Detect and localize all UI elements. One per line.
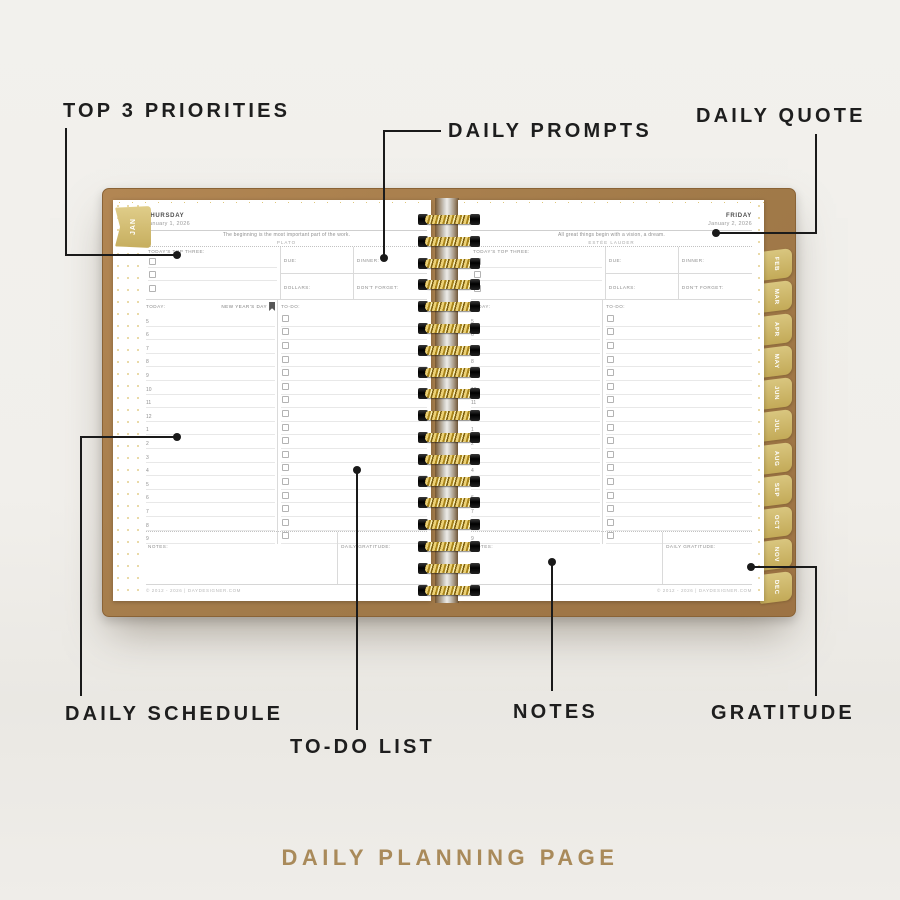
schedule-row: 9 — [471, 367, 600, 381]
todo-row — [281, 435, 427, 449]
today-column: TODAY: NEW YEAR'S DAY 567891011121234567… — [146, 300, 278, 544]
annotation-notes: NOTES — [513, 701, 598, 724]
planner-right-page: FRIDAY January 2, 2026 All great things … — [458, 200, 764, 601]
priority-row — [473, 254, 602, 268]
checkbox-icon — [607, 383, 614, 390]
callout-line — [383, 130, 385, 258]
todo-row — [606, 327, 752, 341]
product-annotation-scene: THURSDAY January 1, 2026 The beginning i… — [0, 0, 900, 900]
callout-line — [80, 436, 176, 438]
holiday-label: NEW YEAR'S DAY — [221, 304, 267, 309]
daily-prompts-section: TODAY'S TOP THREE: DUE: DOLLARS: DINNER:… — [471, 246, 752, 300]
annotation-daily-prompts: DAILY PROMPTS — [448, 120, 652, 143]
gold-speckle-edge — [754, 200, 764, 601]
schedule-row: 3 — [146, 449, 275, 463]
schedule-row: 1 — [471, 422, 600, 436]
caption-daily-planning-page: DAILY PLANNING PAGE — [0, 845, 900, 871]
binding-coil — [418, 258, 480, 269]
callout-line — [815, 134, 817, 234]
schedule-row: 8 — [146, 354, 275, 368]
checkbox-icon — [282, 519, 289, 526]
binding-coil — [418, 432, 480, 443]
month-tab: SEP — [760, 474, 792, 507]
todo-row — [281, 381, 427, 395]
binding-coil — [418, 497, 480, 508]
month-tabs: FEBMARAPRMAYJUNJULAUGSEPOCTNOVDEC — [760, 250, 792, 602]
dont-forget-box: DON'T FORGET: — [354, 274, 427, 300]
todo-row — [606, 313, 752, 327]
checkbox-icon — [282, 383, 289, 390]
checkbox-icon — [607, 369, 614, 376]
checkbox-icon — [607, 437, 614, 444]
todo-row — [606, 422, 752, 436]
binding-coil — [418, 388, 480, 399]
binding-coil — [418, 476, 480, 487]
callout-line — [815, 566, 817, 696]
todo-row — [606, 490, 752, 504]
binding-coil — [418, 410, 480, 421]
month-tab: OCT — [760, 506, 792, 539]
schedule-row: 12 — [471, 408, 600, 422]
todo-row — [281, 408, 427, 422]
schedule-row: 11 — [146, 395, 275, 409]
checkbox-icon — [607, 410, 614, 417]
schedule-row: 8 — [146, 517, 275, 531]
callout-line — [356, 471, 358, 730]
month-tab: FEB — [760, 248, 792, 281]
notes-gratitude-section: NOTES: DAILY GRATITUDE: — [471, 531, 752, 585]
schedule-row: 1 — [146, 422, 275, 436]
quote-author: ESTÉE LAUDER — [471, 240, 752, 245]
checkbox-icon — [149, 271, 156, 278]
callout-line — [383, 130, 441, 132]
annotation-top-3-priorities: TOP 3 PRIORITIES — [63, 100, 290, 123]
todo-row — [606, 381, 752, 395]
todo-row — [281, 490, 427, 504]
notes-box: NOTES: — [146, 532, 337, 584]
daily-schedule-section: TODAY: 56789101112123456789 TO-DO: — [471, 300, 752, 528]
callout-dot — [548, 558, 556, 566]
checkbox-icon — [282, 492, 289, 499]
schedule-row: 7 — [146, 503, 275, 517]
checkbox-icon — [282, 437, 289, 444]
callout-dot — [353, 466, 361, 474]
todo-row — [281, 422, 427, 436]
todo-row — [281, 327, 427, 341]
todo-row — [606, 354, 752, 368]
schedule-row: 6 — [471, 327, 600, 341]
today-label: TODAY: — [146, 304, 165, 309]
gratitude-box: DAILY GRATITUDE: — [337, 532, 427, 584]
annotation-gratitude: GRATITUDE — [711, 702, 855, 725]
dinner-box: DINNER: — [679, 247, 752, 274]
todo-row — [606, 367, 752, 381]
gratitude-box: DAILY GRATITUDE: — [662, 532, 752, 584]
top-three-box: TODAY'S TOP THREE: — [471, 247, 606, 299]
checkbox-icon — [282, 396, 289, 403]
checkbox-icon — [282, 315, 289, 322]
dinner-box: DINNER: — [354, 247, 427, 274]
checkbox-icon — [282, 464, 289, 471]
todo-row — [606, 463, 752, 477]
month-tab: AUG — [760, 442, 792, 475]
todo-label: TO-DO: — [606, 304, 625, 309]
schedule-row: 8 — [471, 517, 600, 531]
priority-row — [473, 268, 602, 282]
notes-box: NOTES: — [471, 532, 662, 584]
dont-forget-box: DON'T FORGET: — [679, 274, 752, 300]
todo-row — [281, 476, 427, 490]
today-column: TODAY: 56789101112123456789 — [471, 300, 603, 544]
checkbox-icon — [149, 285, 156, 292]
spiral-binding — [418, 214, 480, 604]
todo-row — [606, 435, 752, 449]
month-tab: MAY — [760, 345, 792, 378]
callout-line — [719, 232, 817, 234]
checkbox-icon — [607, 356, 614, 363]
schedule-row: 9 — [146, 367, 275, 381]
binding-coil — [418, 323, 480, 334]
callout-dot — [747, 563, 755, 571]
todo-row — [606, 517, 752, 531]
callout-dot — [380, 254, 388, 262]
notes-gratitude-section: NOTES: DAILY GRATITUDE: — [146, 531, 427, 585]
schedule-row: 5 — [146, 476, 275, 490]
checkbox-icon — [607, 342, 614, 349]
binding-coil — [418, 367, 480, 378]
checkbox-icon — [149, 258, 156, 265]
schedule-row: 2 — [471, 435, 600, 449]
priority-row — [148, 281, 277, 294]
page-footer: © 2012 - 2026 | DAYDESIGNER.COM — [146, 588, 427, 593]
tab-jan: JAN — [115, 206, 151, 248]
schedule-row: 6 — [146, 490, 275, 504]
todo-row — [281, 340, 427, 354]
todo-row — [606, 449, 752, 463]
todo-row — [606, 476, 752, 490]
binding-coil — [418, 541, 480, 552]
schedule-row: 10 — [471, 381, 600, 395]
page-header: FRIDAY January 2, 2026 — [471, 213, 752, 231]
dollars-box: DOLLARS: — [281, 274, 353, 300]
month-tab: MAR — [760, 280, 792, 313]
todo-row — [606, 503, 752, 517]
date-label: January 2, 2026 — [471, 221, 752, 227]
checkbox-icon — [282, 478, 289, 485]
todo-row — [281, 449, 427, 463]
schedule-row: 10 — [146, 381, 275, 395]
callout-line — [551, 564, 553, 691]
checkbox-icon — [282, 505, 289, 512]
binding-coil — [418, 519, 480, 530]
checkbox-icon — [607, 519, 614, 526]
page-footer: © 2012 - 2026 | DAYDESIGNER.COM — [471, 588, 752, 593]
binding-coil — [418, 236, 480, 247]
month-tab: JUN — [760, 377, 792, 410]
binding-coil — [418, 279, 480, 290]
due-box: DUE: — [606, 247, 678, 274]
binding-coil — [418, 345, 480, 356]
callout-line — [752, 566, 817, 568]
checkbox-icon — [607, 328, 614, 335]
checkbox-icon — [282, 410, 289, 417]
todo-row — [281, 367, 427, 381]
schedule-row: 7 — [146, 340, 275, 354]
callout-dot — [712, 229, 720, 237]
checkbox-icon — [607, 424, 614, 431]
checkbox-icon — [282, 328, 289, 335]
callout-dot — [173, 433, 181, 441]
checkbox-icon — [282, 451, 289, 458]
month-tab: DEC — [760, 571, 792, 604]
checkbox-icon — [607, 478, 614, 485]
checkbox-icon — [607, 464, 614, 471]
binding-coil — [418, 563, 480, 574]
annotation-daily-schedule: DAILY SCHEDULE — [65, 703, 283, 726]
gold-speckle-edge — [113, 200, 141, 601]
schedule-row: 5 — [471, 313, 600, 327]
todo-label: TO-DO: — [281, 304, 300, 309]
callout-dot — [173, 251, 181, 259]
checkbox-icon — [607, 505, 614, 512]
holiday-flag-icon — [269, 302, 275, 311]
schedule-row: 6 — [146, 327, 275, 341]
binding-coil — [418, 214, 480, 225]
dollars-box: DOLLARS: — [606, 274, 678, 300]
schedule-row: 5 — [471, 476, 600, 490]
priority-row — [473, 281, 602, 294]
checkbox-icon — [607, 492, 614, 499]
schedule-row: 4 — [471, 463, 600, 477]
checkbox-icon — [607, 396, 614, 403]
schedule-row: 11 — [471, 395, 600, 409]
schedule-row: 7 — [471, 503, 600, 517]
binding-coil — [418, 454, 480, 465]
due-box: DUE: — [281, 247, 353, 274]
day-label: FRIDAY — [471, 213, 752, 219]
checkbox-icon — [282, 356, 289, 363]
todo-row — [606, 340, 752, 354]
checkbox-icon — [607, 315, 614, 322]
binding-coil — [418, 585, 480, 596]
todo-row — [281, 313, 427, 327]
annotation-daily-quote: DAILY QUOTE — [696, 105, 866, 128]
todo-row — [281, 503, 427, 517]
daily-schedule-section: TODAY: NEW YEAR'S DAY 567891011121234567… — [146, 300, 427, 528]
schedule-row: 6 — [471, 490, 600, 504]
quote-text: All great things begin with a vision, a … — [471, 232, 752, 238]
callout-line — [80, 436, 82, 696]
todo-row — [281, 395, 427, 409]
priority-row — [148, 268, 277, 282]
schedule-row: 3 — [471, 449, 600, 463]
todo-row — [281, 354, 427, 368]
callout-line — [65, 254, 177, 256]
todo-row — [281, 517, 427, 531]
todo-column: TO-DO: — [603, 300, 752, 544]
binding-coil — [418, 301, 480, 312]
annotation-todo-list: TO-DO LIST — [290, 736, 435, 759]
schedule-row: 5 — [146, 313, 275, 327]
todo-row — [606, 395, 752, 409]
schedule-row: 4 — [146, 463, 275, 477]
holiday-banner: NEW YEAR'S DAY — [221, 302, 275, 311]
month-tab: APR — [760, 313, 792, 346]
todo-column: TO-DO: — [278, 300, 427, 544]
schedule-row: 8 — [471, 354, 600, 368]
priority-row — [148, 254, 277, 268]
callout-line — [65, 128, 67, 256]
checkbox-icon — [282, 424, 289, 431]
checkbox-icon — [607, 451, 614, 458]
checkbox-icon — [282, 369, 289, 376]
schedule-row: 12 — [146, 408, 275, 422]
daily-quote-block: All great things begin with a vision, a … — [471, 232, 752, 245]
month-tab: JUL — [760, 409, 792, 442]
schedule-row: 7 — [471, 340, 600, 354]
checkbox-icon — [282, 342, 289, 349]
todo-row — [606, 408, 752, 422]
